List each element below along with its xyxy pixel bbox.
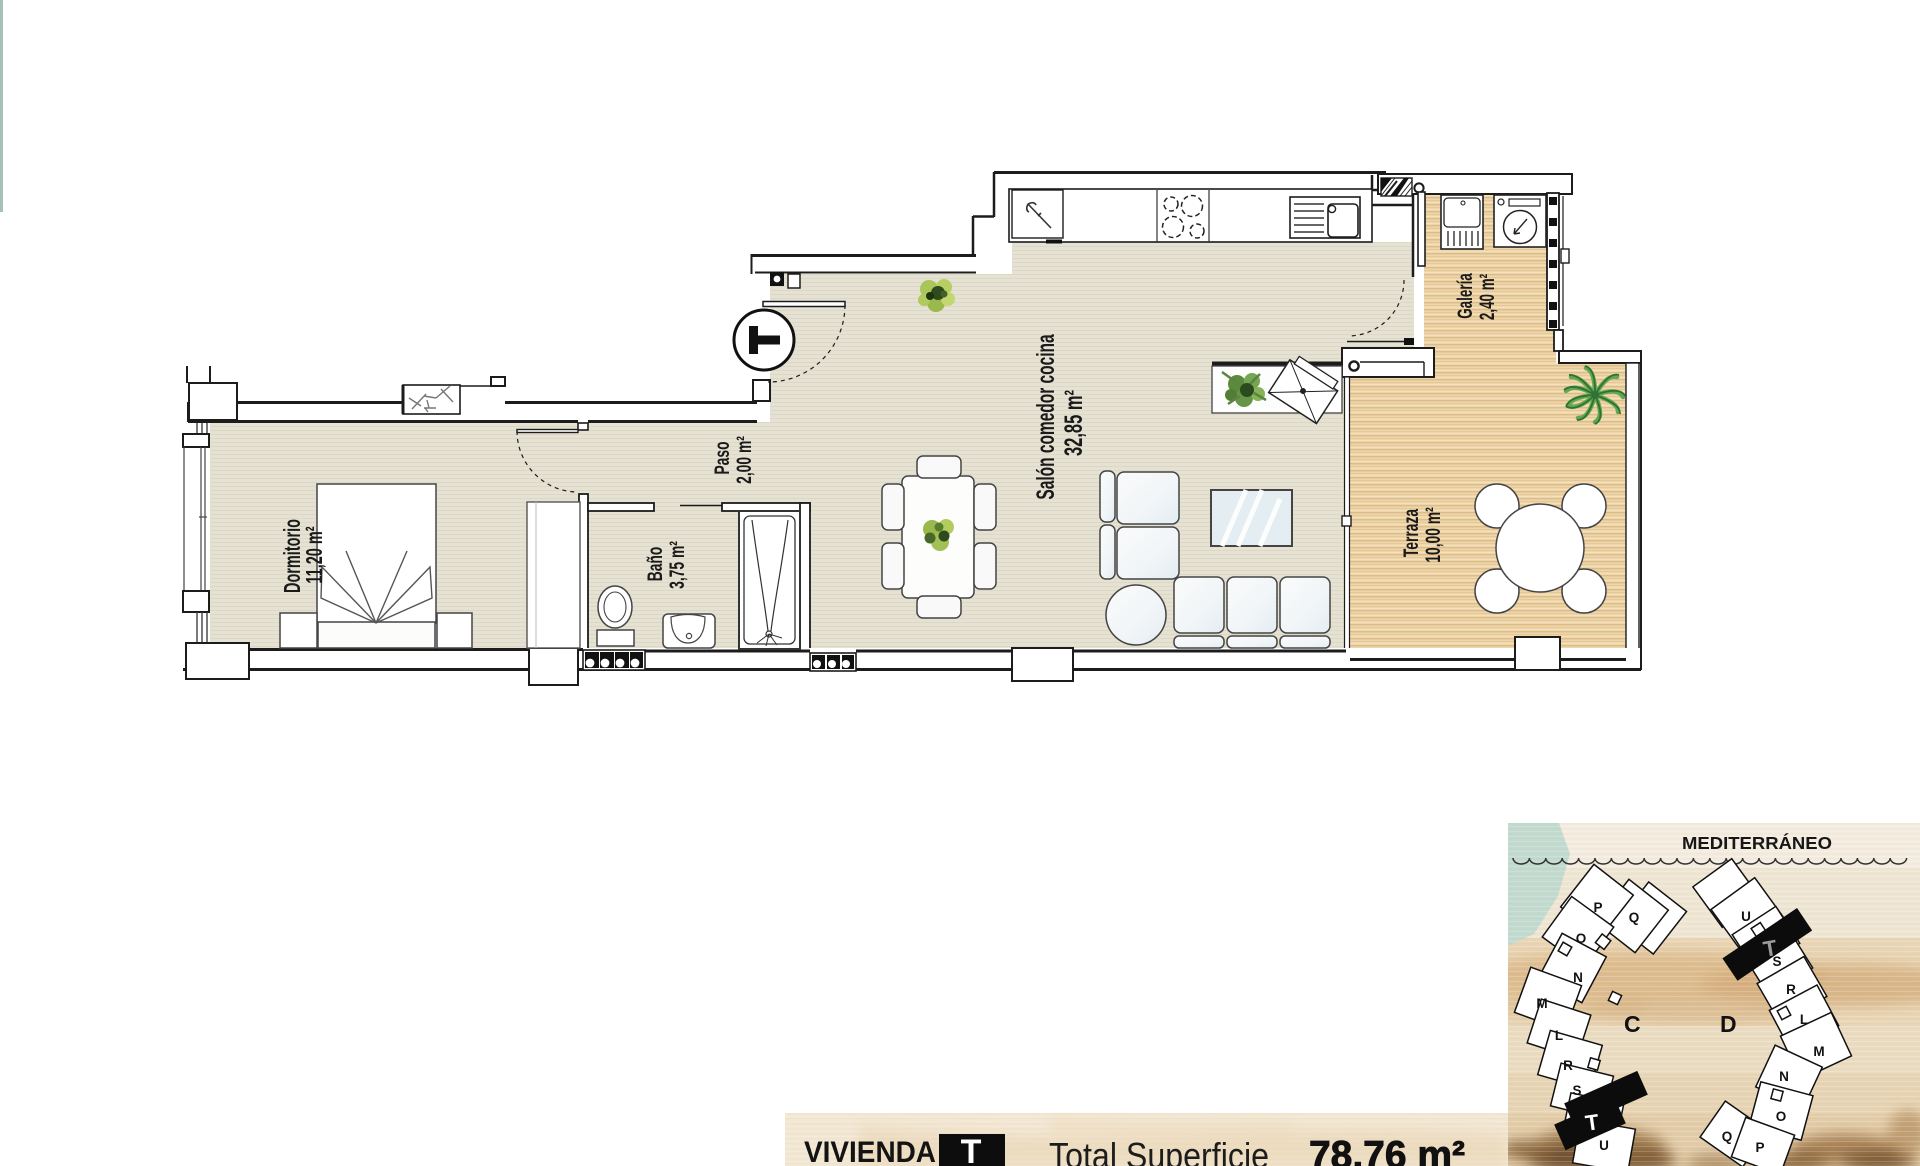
- svg-text:Paso: Paso: [710, 441, 734, 474]
- svg-text:D: D: [1720, 1011, 1737, 1037]
- svg-text:C: C: [1624, 1011, 1641, 1037]
- svg-text:M: M: [1536, 996, 1547, 1011]
- svg-text:Total Superficie: Total Superficie: [1049, 1135, 1269, 1166]
- svg-text:N: N: [1779, 1069, 1789, 1084]
- svg-text:32,85 m²: 32,85 m²: [1061, 390, 1088, 456]
- svg-text:Q: Q: [1722, 1129, 1733, 1144]
- svg-text:O: O: [1776, 1109, 1787, 1124]
- svg-text:Galería: Galería: [1453, 273, 1477, 319]
- svg-text:MEDITERRÁNEO: MEDITERRÁNEO: [1682, 832, 1832, 853]
- svg-text:11,20 m²: 11,20 m²: [303, 526, 328, 583]
- svg-text:T: T: [961, 1133, 982, 1166]
- svg-text:78,76 m²: 78,76 m²: [1309, 1134, 1465, 1166]
- svg-text:Q: Q: [1629, 910, 1640, 925]
- svg-text:S: S: [1572, 1083, 1581, 1098]
- svg-text:L: L: [1555, 1028, 1563, 1043]
- svg-text:2,40 m²: 2,40 m²: [1475, 274, 1499, 320]
- svg-text:3,75 m²: 3,75 m²: [665, 541, 689, 589]
- svg-text:2,00 m²: 2,00 m²: [732, 436, 756, 484]
- svg-text:U: U: [1741, 909, 1751, 924]
- svg-text:P: P: [1755, 1140, 1764, 1155]
- svg-text:U: U: [1599, 1138, 1609, 1153]
- svg-text:P: P: [1593, 900, 1602, 915]
- svg-text:S: S: [1772, 954, 1781, 969]
- svg-text:L: L: [1800, 1012, 1808, 1027]
- svg-text:R: R: [1786, 982, 1796, 997]
- svg-text:M: M: [1813, 1044, 1824, 1059]
- svg-text:N: N: [1573, 970, 1583, 985]
- svg-text:10,00 m²: 10,00 m²: [1421, 507, 1445, 563]
- svg-text:R: R: [1563, 1058, 1573, 1073]
- svg-text:Salón comedor cocina: Salón comedor cocina: [1032, 334, 1060, 500]
- svg-text:Baño: Baño: [643, 547, 667, 582]
- svg-text:O: O: [1576, 931, 1587, 946]
- svg-text:VIVIENDA: VIVIENDA: [804, 1136, 936, 1166]
- svg-text:Terraza: Terraza: [1399, 509, 1423, 557]
